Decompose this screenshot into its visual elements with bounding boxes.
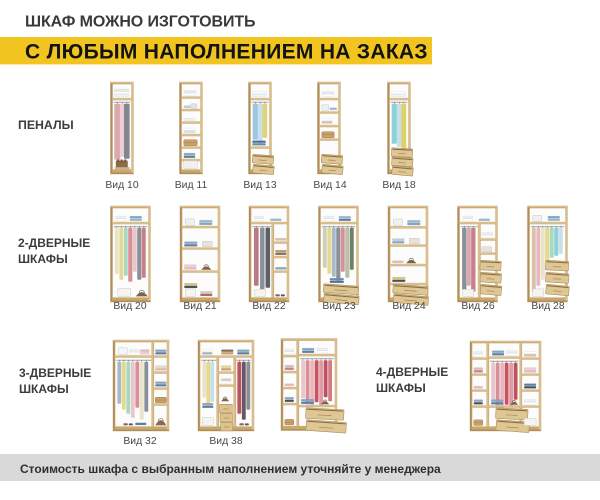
svg-text:Вид 22: Вид 22 bbox=[252, 301, 285, 312]
svg-text:ШКАФЫ: ШКАФЫ bbox=[18, 252, 68, 266]
svg-text:Вид 10: Вид 10 bbox=[105, 180, 138, 191]
svg-text:Вид 13: Вид 13 bbox=[243, 180, 276, 191]
svg-text:Стоимость шкафа с выбранным на: Стоимость шкафа с выбранным наполнением … bbox=[20, 462, 441, 476]
svg-text:ШКАФЫ: ШКАФЫ bbox=[376, 381, 426, 395]
svg-text:2-ДВЕРНЫЕ: 2-ДВЕРНЫЕ bbox=[18, 236, 90, 250]
svg-text:Вид 23: Вид 23 bbox=[322, 301, 355, 312]
svg-text:ШКАФ МОЖНО ИЗГОТОВИТЬ: ШКАФ МОЖНО ИЗГОТОВИТЬ bbox=[25, 14, 255, 31]
svg-text:Вид 32: Вид 32 bbox=[123, 436, 156, 447]
svg-text:ПЕНАЛЫ: ПЕНАЛЫ bbox=[18, 118, 74, 132]
svg-text:4-ДВЕРНЫЕ: 4-ДВЕРНЫЕ bbox=[376, 365, 448, 379]
svg-text:С ЛЮБЫМ НАПОЛНЕНИЕМ НА ЗАКАЗ: С ЛЮБЫМ НАПОЛНЕНИЕМ НА ЗАКАЗ bbox=[25, 41, 428, 64]
svg-text:Вид 26: Вид 26 bbox=[461, 301, 494, 312]
svg-text:3-ДВЕРНЫЕ: 3-ДВЕРНЫЕ bbox=[19, 366, 91, 380]
svg-text:Вид 11: Вид 11 bbox=[175, 180, 208, 191]
svg-text:Вид 24: Вид 24 bbox=[392, 301, 425, 312]
svg-text:Вид 14: Вид 14 bbox=[313, 180, 346, 191]
svg-text:Вид 21: Вид 21 bbox=[183, 301, 216, 312]
svg-text:Вид 28: Вид 28 bbox=[531, 301, 564, 312]
svg-text:Вид 20: Вид 20 bbox=[113, 301, 146, 312]
svg-text:Вид 38: Вид 38 bbox=[209, 436, 242, 447]
svg-text:ШКАФЫ: ШКАФЫ bbox=[19, 382, 69, 396]
svg-text:Вид 18: Вид 18 bbox=[382, 180, 415, 191]
